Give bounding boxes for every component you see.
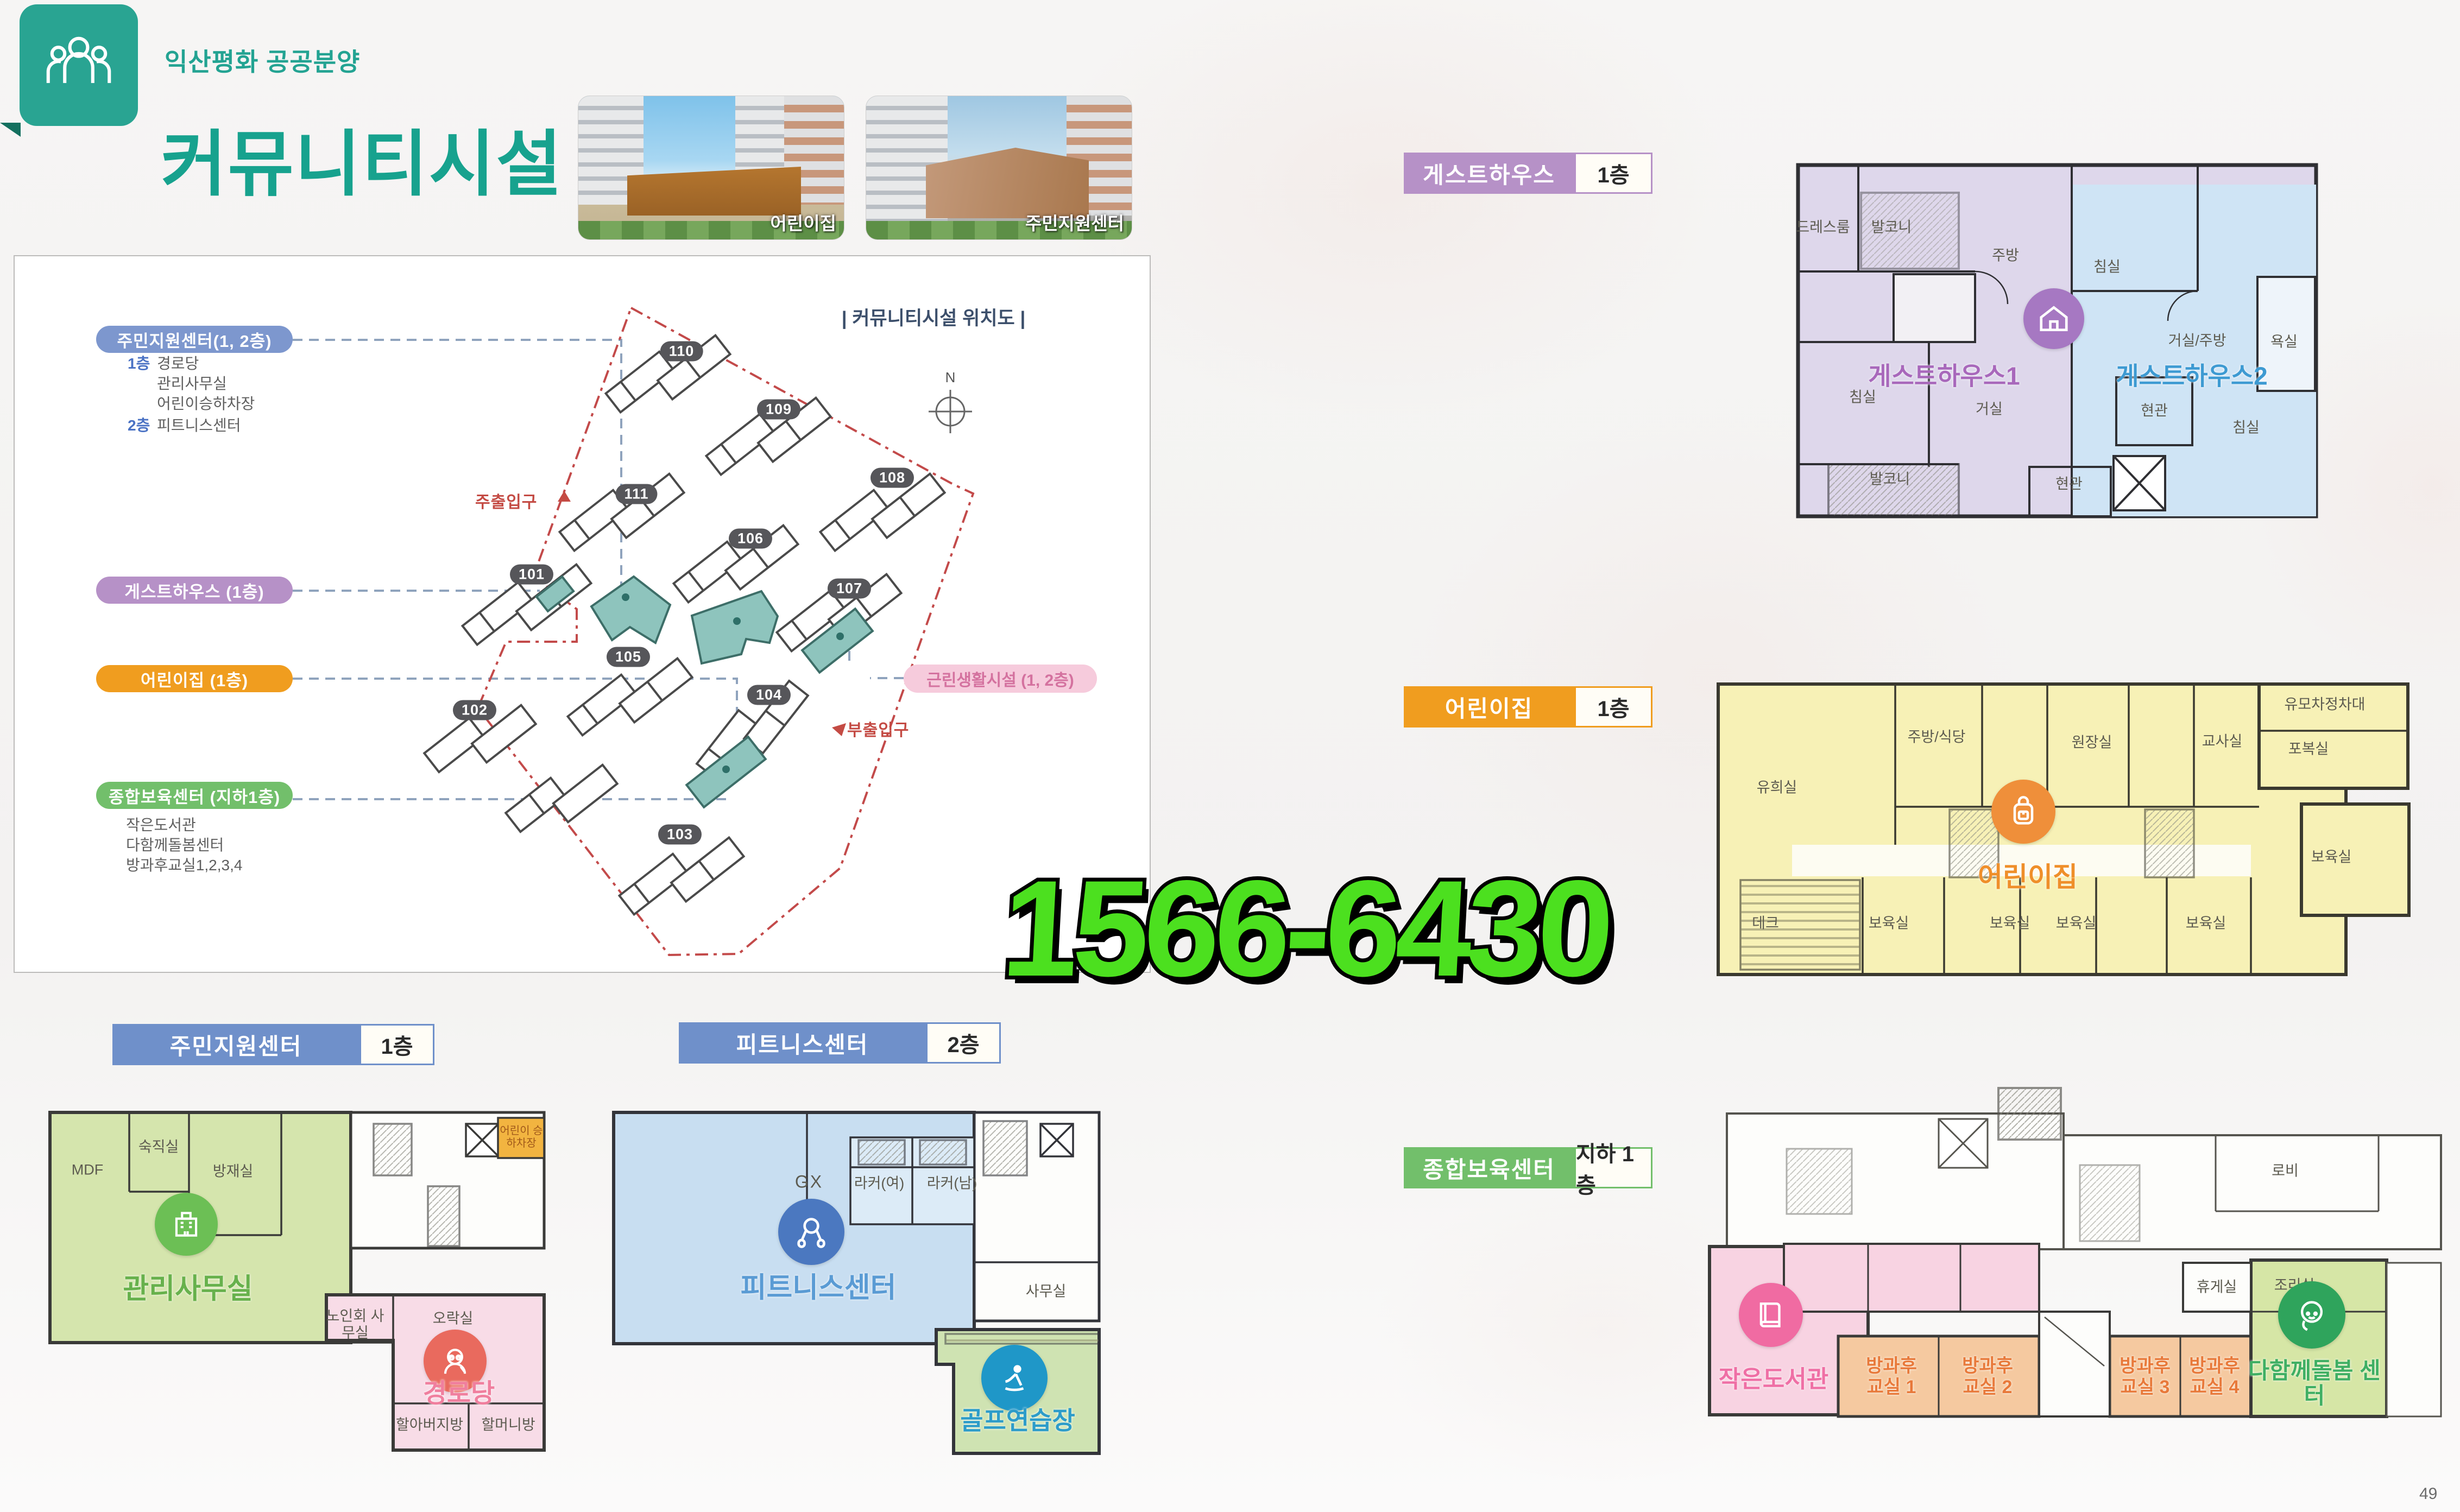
room-label: 할아버지방	[396, 1416, 463, 1433]
room-label: 현관	[2141, 402, 2168, 419]
room-label: 욕실	[2270, 333, 2298, 350]
room-label: 포복실	[2288, 741, 2329, 757]
room-label: 유희실	[1757, 779, 1797, 796]
building-badge: 108	[871, 468, 914, 488]
baby-icon	[2278, 1281, 2345, 1349]
people-icon	[38, 24, 119, 106]
backpack-icon	[1991, 780, 2055, 844]
page-number: 49	[2419, 1485, 2437, 1503]
room-label: MDF	[72, 1161, 103, 1178]
daycare-title: 어린이집	[1978, 863, 2078, 893]
community-floor: 1층	[359, 1024, 434, 1065]
photo-caption: 어린이집	[771, 209, 836, 235]
building-badge: 111	[615, 484, 657, 504]
community-floorplan: MDF 숙직실 방재실 노인회 사무실 오락실 할아버지방 할머니방 어린이 승…	[48, 1110, 546, 1453]
page-title: 커뮤니티시설	[161, 106, 563, 210]
room-label: 숙직실	[138, 1138, 179, 1155]
guesthouse-bar: 게스트하우스	[1404, 153, 1574, 194]
building-badge: 105	[607, 647, 650, 667]
room-label: 보육실	[1869, 915, 1909, 932]
hand-gripper-icon	[778, 1199, 844, 1265]
room-label: 보육실	[2056, 915, 2097, 932]
golf-title: 골프연습장	[960, 1407, 1075, 1435]
building-badge: 107	[828, 579, 871, 599]
book-icon	[1739, 1283, 1803, 1347]
building-badge: 110	[660, 341, 703, 362]
compass-icon	[929, 390, 972, 433]
office-building-icon	[155, 1193, 218, 1256]
building-badge: 106	[729, 529, 772, 549]
building-badge: 104	[747, 685, 791, 705]
room-label: 보육실	[2311, 849, 2352, 865]
header-eyebrow: 익산평화 공공분양	[165, 42, 360, 78]
room-label: 할머니방	[481, 1416, 535, 1433]
room-label: 사무실	[1026, 1283, 1067, 1300]
office-title: 관리사무실	[123, 1274, 253, 1305]
guesthouse1-title: 게스트하우스1	[1868, 363, 2020, 390]
fitness-bar: 피트니스센터	[679, 1022, 926, 1064]
room-label: 노인회 사무실	[325, 1308, 385, 1342]
neighborhood-facility-label: 근린생활시설 (1, 2층)	[904, 665, 1097, 693]
room-label: 방과후 교실 4	[2182, 1356, 2247, 1398]
guesthouse2-title: 게스트하우스2	[2116, 363, 2268, 390]
compass-n: N	[945, 369, 956, 385]
guesthouse-floor: 1층	[1574, 153, 1652, 194]
room-label: 거실/주방	[2168, 332, 2226, 349]
room-label: 어린이 승하차장	[498, 1125, 545, 1150]
senior-title: 경로당	[423, 1380, 495, 1409]
room-label: 라커(여)	[854, 1175, 905, 1192]
childcare-label: 종합보육센터 지하 1층	[1404, 1147, 1652, 1188]
childcare-bar: 종합보육센터	[1404, 1147, 1574, 1188]
room-label: 휴게실	[2197, 1279, 2237, 1295]
guesthouse-floorplan: 드레스룸 발코니 주방 침실 거실/주방 욕실 침실 거실 현관 침실 발코니 …	[1796, 163, 2318, 518]
sub-entrance-label: 부출입구	[847, 717, 909, 741]
daycare-floorplan: 유희실 주방/식당 원장실 교사실 포복실 유모차정차대 보육실 데크 보육실 …	[1716, 682, 2411, 978]
golf-icon	[981, 1345, 1048, 1411]
room-label: 드레스룸	[1796, 219, 1850, 236]
room-label: 발코니	[1870, 471, 1910, 488]
daycare-label: 어린이집 1층	[1404, 686, 1652, 727]
photo-residents-center: 주민지원센터	[866, 96, 1132, 240]
phone-watermark: 1566-6430 1566-6430	[896, 844, 1711, 1015]
guesthouse-label: 게스트하우스 1층	[1404, 153, 1652, 194]
room-label: 침실	[2093, 258, 2121, 275]
care-center-title: 다함께돌봄 센터	[2244, 1358, 2385, 1408]
building-badge: 109	[757, 400, 800, 420]
fitness-label: 피트니스센터 2층	[679, 1022, 1001, 1064]
room-label: 방재실	[213, 1163, 254, 1180]
room-label: 침실	[2232, 419, 2260, 436]
building-badge: 102	[453, 700, 496, 720]
fitness-title: 피트니스센터	[740, 1273, 896, 1304]
room-label: 방과후 교실 3	[2112, 1356, 2178, 1398]
daycare-floor: 1층	[1574, 686, 1652, 727]
header-ribbon-fold	[0, 123, 21, 137]
room-label: 거실	[1976, 401, 2003, 417]
room-label: 발코니	[1871, 219, 1912, 236]
building-badge: 103	[658, 825, 702, 845]
phone-number-text: 1566-6430	[999, 852, 1612, 1005]
room-label: 원장실	[2072, 734, 2112, 751]
room-label: 교사실	[2202, 733, 2243, 750]
room-label: 보육실	[2186, 915, 2226, 932]
room-label: 방과후 교실 2	[1955, 1356, 2020, 1398]
community-people-icon	[20, 4, 138, 126]
photo-daycare: 어린이집	[578, 96, 844, 240]
library-title: 작은도서관	[1719, 1367, 1828, 1393]
room-label: 주방/식당	[1908, 729, 1966, 745]
daycare-bar: 어린이집	[1404, 686, 1574, 727]
room-label: 데크	[1752, 915, 1779, 932]
room-label: 현관	[2055, 476, 2083, 492]
brochure-page: 익산평화 공공분양 커뮤니티시설 어린이집 주민지원센터 주민지원센터(1, 2…	[0, 0, 2460, 1512]
room-label: 라커(남)	[927, 1175, 977, 1192]
community-bar: 주민지원센터	[112, 1024, 359, 1065]
room-label: GX	[795, 1172, 823, 1192]
room-label: 유모차정차대	[2284, 696, 2365, 713]
room-label: 오락실	[433, 1310, 474, 1327]
house-icon	[2023, 288, 2084, 349]
building-badge: 101	[510, 565, 553, 585]
room-label: 보육실	[1990, 915, 2030, 932]
room-label: 방과후 교실 1	[1859, 1356, 1924, 1398]
photo-caption: 주민지원센터	[1025, 209, 1124, 235]
community-label: 주민지원센터 1층	[112, 1024, 434, 1065]
fitness-floor: 2층	[926, 1022, 1001, 1064]
childcare-floorplan: 로비 휴게실 조리실 방과후 교실 1 방과후 교실 2 방과후 교실 3 방과…	[1705, 1084, 2446, 1420]
room-label: 로비	[2272, 1162, 2299, 1179]
fitness-floorplan: GX 라커(여) 라커(남) 사무실 피트니스센터 골프연습장	[611, 1110, 1103, 1455]
room-label: 침실	[1849, 389, 1876, 406]
childcare-floor: 지하 1층	[1574, 1147, 1652, 1188]
main-entrance-label: 주출입구	[475, 489, 537, 513]
room-label: 주방	[1992, 247, 2019, 264]
